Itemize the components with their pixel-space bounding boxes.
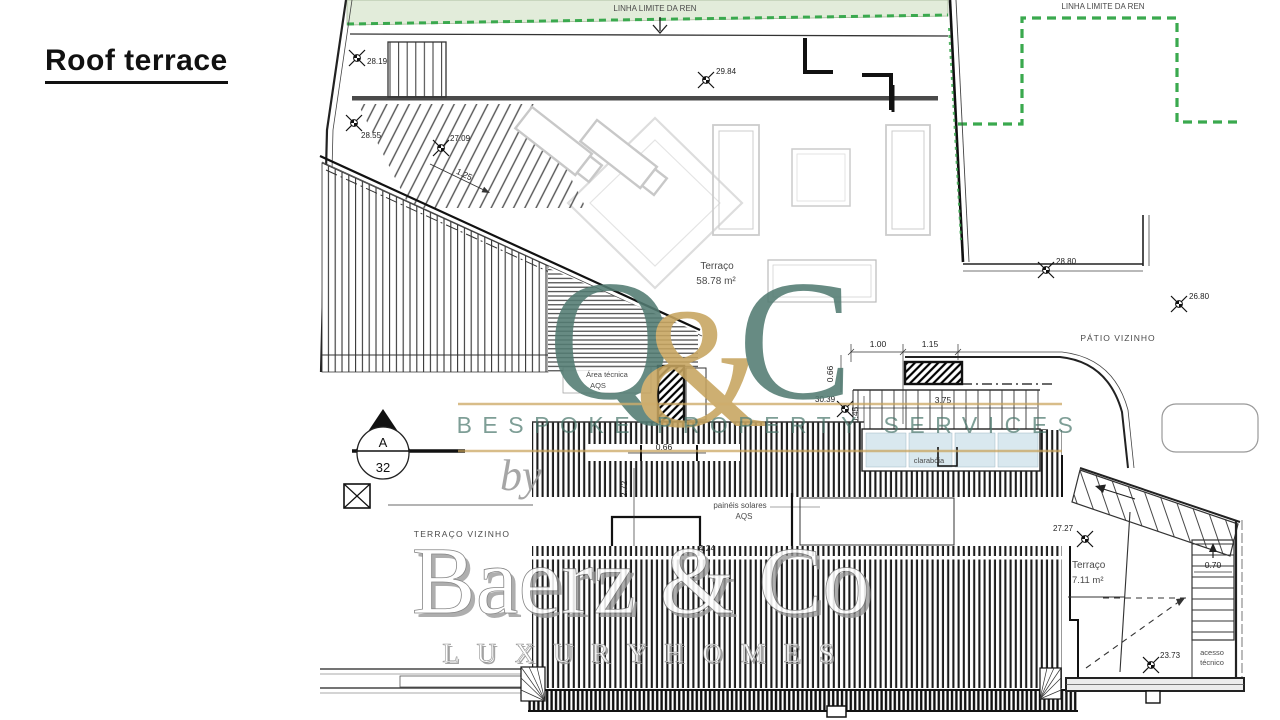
section-marker-a32: A 32	[344, 409, 465, 508]
elevation-26-80: 26.80	[1189, 292, 1210, 301]
dim-0-70: 0.70	[1205, 560, 1222, 570]
solar-label-1: painéis solares	[713, 501, 766, 510]
coffee-table	[792, 149, 850, 206]
dim-1-00: 1.00	[870, 339, 887, 349]
roof-terrace-plan-page: Roof terrace	[0, 0, 1280, 720]
access-label-2: técnico	[1200, 658, 1224, 667]
elevation-27-27: 27.27	[1053, 524, 1074, 533]
skylight-label: clarabóia	[914, 456, 945, 465]
access-label-1: acesso	[1200, 648, 1224, 657]
elevation-29-84: 29.84	[716, 67, 737, 76]
elevation-23-73: 23.73	[1160, 651, 1181, 660]
section-number: 32	[376, 460, 390, 475]
ren-top-label: LINHA LIMITE DA REN	[613, 4, 696, 13]
patio-neighbor-label: PÁTIO VIZINHO	[1080, 333, 1155, 343]
ren-limit-strip: LINHA LIMITE DA REN	[347, 0, 948, 33]
dim-2-72: 2.72	[619, 480, 629, 497]
elevation-28-19: 28.19	[367, 57, 388, 66]
elevation-27-09: 27.09	[450, 134, 471, 143]
crossed-box-symbol	[344, 484, 370, 508]
svg-text:Terraço: Terraço	[700, 261, 734, 272]
section-letter: A	[379, 435, 388, 450]
lower-right-terrace: 0.70 Terraço 7.11 m² acesso técnico	[1066, 468, 1244, 703]
small-terrace-area: 7.11 m²	[1072, 575, 1104, 586]
solar-label-2: AQS	[736, 512, 753, 521]
sofa-right	[886, 125, 930, 235]
watermark-brand-sub: L U X U R Y H O M E S	[442, 638, 840, 668]
floor-plan-canvas: LINHA LIMITE DA REN LINHA LIMITE DA REN	[0, 0, 1280, 720]
dim-1-15: 1.15	[922, 339, 939, 349]
small-terrace-label: Terraço	[1072, 560, 1106, 571]
watermark-tagline: BESPOKE PROPERTY SERVICES	[457, 412, 1084, 438]
column-marker-left	[521, 667, 545, 701]
stairs-top-left	[388, 42, 446, 97]
ren-right-label: LINHA LIMITE DA REN	[1061, 2, 1144, 11]
elevation-28-55: 28.55	[361, 131, 382, 140]
column-marker-right	[1040, 668, 1061, 699]
watermark-brand: Baerz & Co	[412, 527, 871, 634]
elevation-28-80: 28.80	[1056, 257, 1077, 266]
watermark-by: by	[500, 451, 542, 500]
patio-planter	[1162, 404, 1258, 452]
ren-limit-right: LINHA LIMITE DA REN	[958, 2, 1243, 124]
